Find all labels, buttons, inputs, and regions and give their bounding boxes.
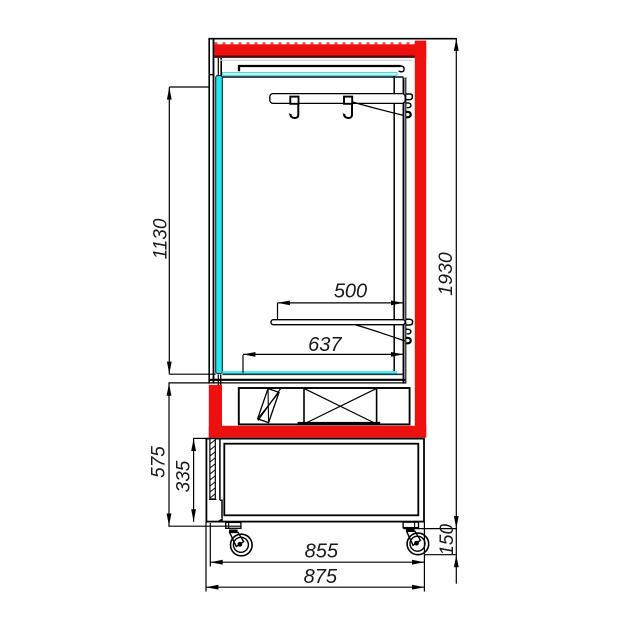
svg-text:335: 335 <box>174 460 195 492</box>
svg-text:1930: 1930 <box>435 252 457 296</box>
svg-text:637: 637 <box>308 334 342 356</box>
svg-text:150: 150 <box>437 524 458 556</box>
svg-text:855: 855 <box>305 540 339 562</box>
svg-text:875: 875 <box>304 566 338 588</box>
svg-text:1130: 1130 <box>151 218 172 259</box>
svg-text:575: 575 <box>149 446 170 478</box>
svg-text:500: 500 <box>334 280 367 302</box>
